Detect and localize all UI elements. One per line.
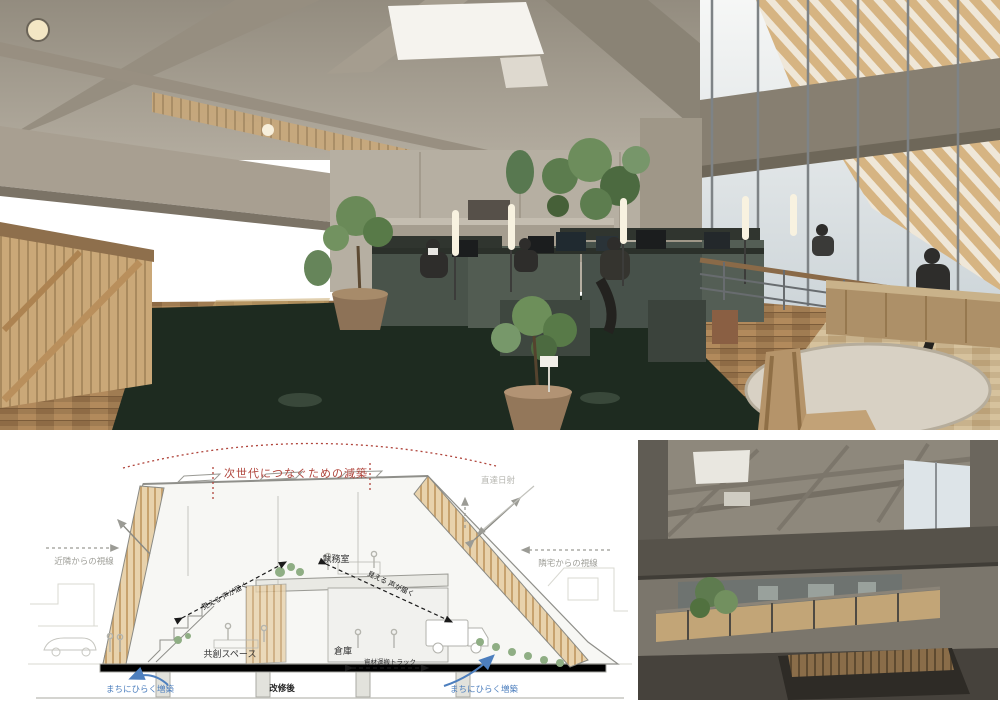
small-plant: [304, 250, 332, 286]
main-interior-photo: [0, 0, 1000, 430]
skylight-glow: [724, 492, 750, 506]
mezzanine-photo: [638, 440, 998, 700]
label-demolition: 次世代につなぐための減築: [224, 466, 368, 480]
mezzanine-rendering: [638, 440, 998, 700]
wooden-balustrade-left: [0, 222, 154, 408]
label-warehouse: 倉庫: [334, 645, 352, 656]
floor-socket: [278, 393, 322, 407]
label-office-room: 執務室: [322, 553, 349, 564]
label-gaze-left: 近隣からの視線: [54, 556, 114, 566]
floor-socket: [580, 392, 620, 404]
wood-chair: [758, 348, 808, 430]
waste-bin: [712, 310, 738, 344]
skylight-secondary: [693, 450, 750, 484]
main-interior-rendering: [0, 0, 1000, 430]
section-diagram-drawing: 次世代につなぐための減築 近隣からの視線 隣宅からの視線 直達日射 見える 声が…: [28, 436, 632, 708]
pendant-lamp: [262, 124, 274, 136]
floor-void: [638, 648, 998, 700]
mezzanine-level: [638, 566, 998, 656]
plant-sign: [540, 356, 558, 367]
caged-wall-lamp: [27, 19, 49, 41]
label-cocreation-space: 共創スペース: [204, 648, 257, 659]
label-after-renovation: 改修後: [269, 683, 295, 693]
label-truck: 資材運搬トラック: [364, 657, 416, 666]
label-open-left: まちにひらく増築: [106, 684, 175, 694]
section-diagram: 次世代につなぐための減築 近隣からの視線 隣宅からの視線 直達日射 見える 声が…: [28, 436, 632, 708]
portfolio-collage-page: 次世代につなぐための減築 近隣からの視線 隣宅からの視線 直達日射 見える 声が…: [0, 0, 1000, 708]
tube-lamp: [790, 194, 797, 236]
label-open-right: まちにひらく増築: [450, 684, 519, 694]
label-gaze-right: 隣宅からの視線: [538, 558, 598, 568]
label-sunlight: 直達日射: [481, 475, 516, 485]
